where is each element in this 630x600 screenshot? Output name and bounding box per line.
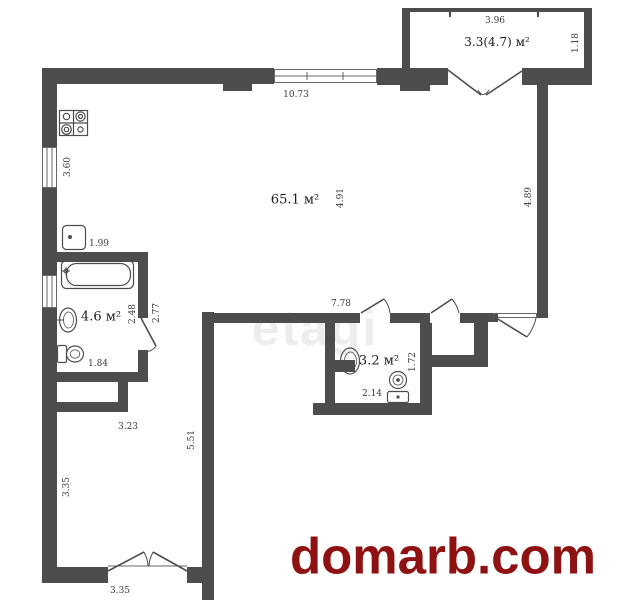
wall-wc-jamb (460, 313, 474, 323)
dim-balcony-width: 3.96 (485, 16, 505, 26)
wall-left-mid (42, 188, 57, 275)
stove-burner (62, 125, 72, 135)
dim-balcony-depth: 1.18 (571, 33, 581, 53)
bath-window (43, 276, 57, 308)
stove-burner (76, 112, 85, 121)
entry-opening (494, 314, 537, 318)
bedroom-door-left-leaf (108, 552, 144, 571)
dim-corridor-top: 7.78 (331, 299, 351, 309)
balcony-glazing-tick (449, 12, 451, 17)
balcony-glazing (402, 8, 592, 12)
bathtub-icon (62, 261, 134, 289)
balcony-door-left-leaf (448, 70, 481, 95)
wall-top-right (522, 68, 592, 85)
area-label-balcony: 3.3(4.7) м² (464, 35, 530, 49)
wall-right-upper (537, 85, 548, 318)
dim-right-wall: 4.89 (524, 187, 534, 207)
balcony-door-right-leaf (486, 71, 522, 95)
wc-door-arc (384, 299, 390, 313)
dim-wc-height: 1.72 (408, 352, 418, 372)
wc-toilet-drain (397, 379, 400, 382)
wall-wc-bottom (313, 403, 432, 415)
bedroom-door-right-leaf (153, 552, 187, 571)
wall-bath-right-upper (138, 252, 148, 318)
bath-toilet-bowl-inner (70, 350, 80, 358)
kitchen-sink-drain (69, 236, 72, 239)
balcony-glazing-tick (537, 12, 539, 17)
dim-living-depth: 4.91 (336, 188, 346, 208)
stove-burner (79, 115, 83, 119)
wall-wc-zig-horiz (430, 355, 474, 367)
wall-bath-bottom (57, 372, 148, 382)
wall-top-left (42, 68, 274, 84)
area-label-living: 65.1 м² (271, 193, 319, 208)
stove-burner (63, 113, 69, 119)
area-label-bathroom: 4.6 м² (81, 310, 121, 325)
stove-burner (78, 127, 83, 132)
wc-door-leaf (361, 299, 384, 313)
entry-door-leaf (493, 316, 527, 337)
bath-sink-icon (57, 308, 77, 332)
bath-toilet-icon (58, 346, 84, 363)
wall-wc-zig-vert (474, 313, 488, 367)
wall-bottom-jamb (187, 567, 202, 583)
hall-door-arc (452, 299, 459, 313)
dim-corridor-height: 5.51 (187, 430, 197, 450)
floor-plan-svg (0, 0, 630, 600)
dim-bedroom-bottom: 3.35 (110, 586, 130, 596)
bath-toilet-tank (58, 346, 67, 363)
wall-pier-a (223, 84, 252, 91)
stove-burner (64, 127, 68, 131)
wall-wc-top-a (325, 313, 360, 323)
wall-corridor-top (202, 313, 325, 323)
wc-toilet-button (397, 396, 399, 398)
bathtub-inner (67, 264, 131, 286)
dim-bedroom-top: 3.23 (118, 422, 138, 432)
wall-balcony-left (402, 8, 410, 68)
dim-top-window: 10.73 (283, 90, 309, 100)
bath-toilet-bowl (67, 346, 84, 362)
dim-bedroom-left: 3.35 (62, 477, 72, 497)
wall-bottom-left (42, 567, 108, 583)
wall-wc-top-b (390, 313, 430, 323)
wall-wc-right (420, 323, 432, 413)
area-label-wc: 3.2 м² (359, 354, 399, 369)
kitchen-sink-icon (63, 226, 86, 250)
hall-door-leaf (431, 299, 452, 313)
site-watermark: domarb.com (290, 527, 596, 586)
floor-plan-page: etagi (0, 0, 630, 600)
wall-bedroom-top (57, 402, 128, 412)
dim-kitchen-sink: 1.99 (89, 239, 109, 249)
wall-left-low (42, 308, 57, 583)
dim-bath-outer: 2.77 (152, 303, 162, 323)
dim-kitchen-window: 3.60 (63, 157, 73, 177)
bedroom-door-arcs (144, 552, 153, 566)
wall-corridor (202, 312, 214, 600)
kitchen-window (43, 148, 57, 188)
dim-bath-width: 2.48 (128, 304, 138, 324)
entry-door-arc (527, 318, 536, 337)
bath-sink-inner (64, 312, 74, 328)
dim-bath-door: 1.84 (88, 359, 108, 369)
kitchen-sink-basin (63, 226, 86, 250)
walls (42, 8, 592, 600)
wc-toilet-icon (388, 372, 409, 403)
stove-icon (60, 111, 88, 136)
dim-wc-width: 2.14 (362, 389, 382, 399)
wall-pier-b (400, 84, 430, 91)
wall-top-mid (377, 68, 448, 85)
wall-balcony-right (584, 8, 592, 68)
